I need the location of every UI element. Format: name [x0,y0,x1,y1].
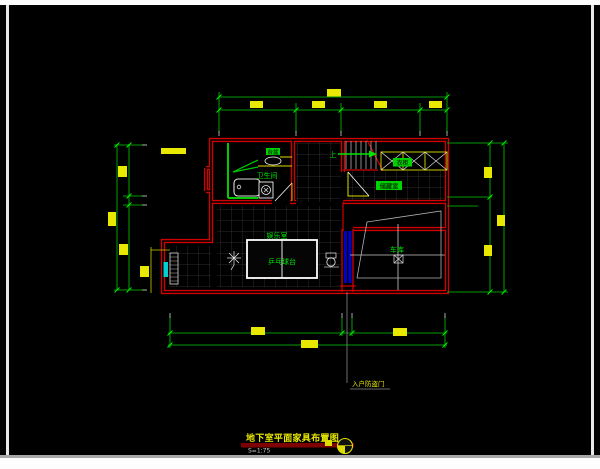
wardrobe-cabinets: 衣柜 [381,152,447,170]
garage-ramp [357,211,441,278]
window-frame-top [0,0,600,5]
title-block: 地下室平面家具布置图 S=1:75 [241,432,354,455]
door-note-label: 入户防盗门 [352,379,385,388]
bathroom: 台盆 卫生间 [228,143,292,201]
garage-symbol [394,255,403,263]
pingpong-label: 乒乓球台 [268,257,296,266]
dim-text-highlight [161,148,186,154]
drawing-scale: S=1:75 [248,448,270,455]
garage-label: 车库 [390,245,404,254]
window-margin-bottom [0,458,600,469]
entry-door [340,229,356,292]
storage-label: 储藏室 [379,183,399,191]
bathroom-label: 卫生间 [257,171,278,180]
cad-window: 上 衣柜 储藏室 [0,0,600,469]
garage: 车库 [350,211,445,290]
window-frame-left [6,5,9,455]
cad-drawing-viewport[interactable]: 上 衣柜 储藏室 [0,0,600,469]
door-note: 入户防盗门 [347,292,390,389]
door-swing [275,183,292,201]
radiator [170,253,178,284]
cabinet-label: 衣柜 [396,159,408,167]
window-frame-right [591,5,594,455]
window-glass [164,262,169,277]
bathtub [234,179,260,196]
detail-bubble-icon [338,439,353,454]
stair-up-label: 上 [330,150,337,159]
washbasin [265,157,281,165]
vanity-label: 台盆 [267,148,279,156]
entertainment-label: 娱乐室 [267,231,288,240]
